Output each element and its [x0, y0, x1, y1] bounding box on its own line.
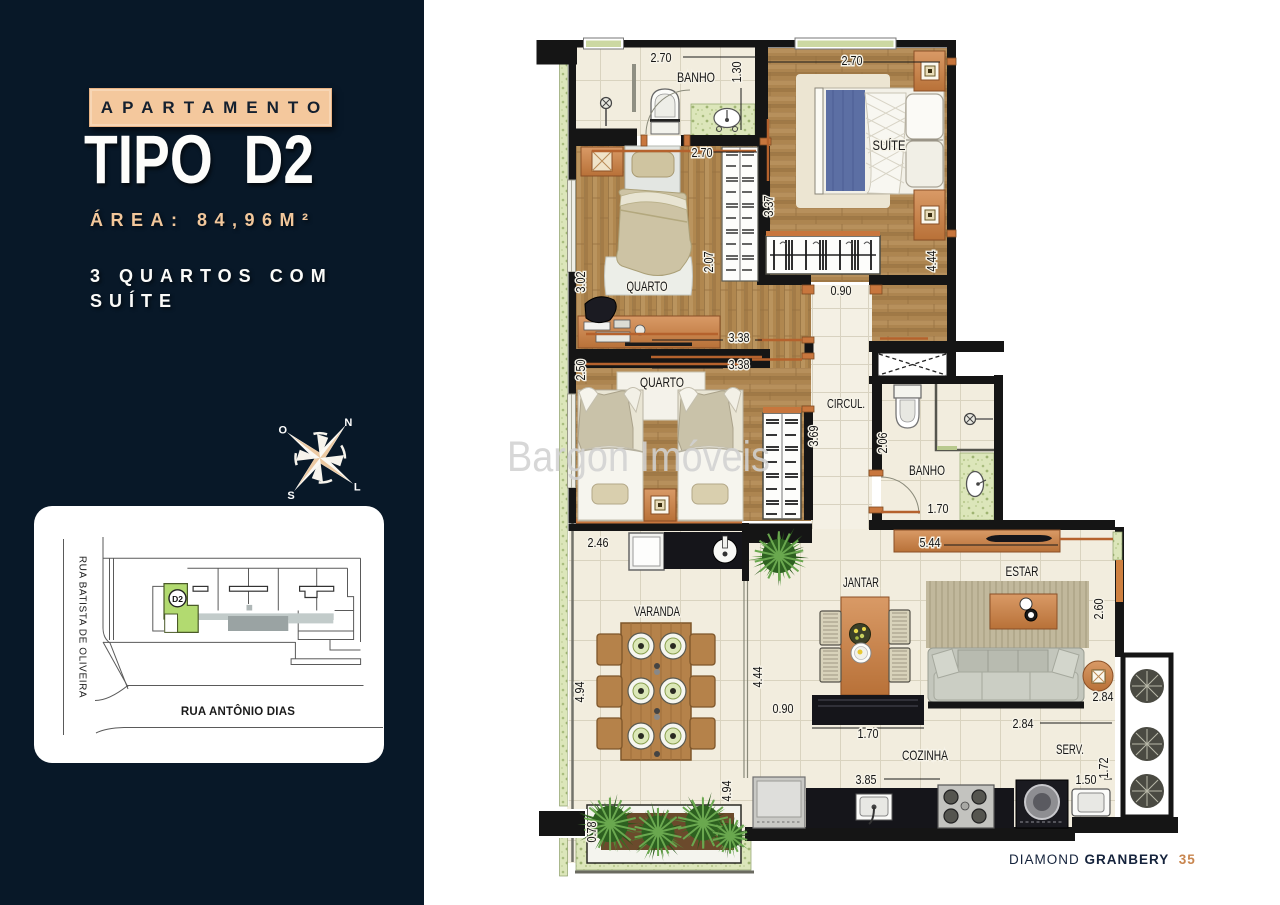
- svg-text:0.90: 0.90: [773, 702, 794, 716]
- svg-text:2.50: 2.50: [574, 359, 588, 380]
- svg-text:ESTAR: ESTAR: [1006, 563, 1039, 579]
- svg-text:VARANDA: VARANDA: [634, 603, 680, 619]
- svg-text:3.38: 3.38: [729, 358, 750, 372]
- svg-text:3.02: 3.02: [574, 271, 588, 292]
- svg-text:COZINHA: COZINHA: [902, 747, 948, 763]
- svg-text:CIRCUL.: CIRCUL.: [827, 396, 865, 411]
- svg-text:0.90: 0.90: [831, 284, 852, 298]
- svg-text:0.78: 0.78: [585, 821, 599, 842]
- svg-text:3.85: 3.85: [856, 773, 877, 787]
- svg-text:SUÍTE: SUÍTE: [873, 137, 906, 153]
- svg-text:2.84: 2.84: [1093, 690, 1114, 704]
- svg-text:2.84: 2.84: [1013, 717, 1034, 731]
- svg-text:2.06: 2.06: [876, 432, 890, 453]
- svg-text:BANHO: BANHO: [677, 69, 715, 85]
- svg-text:4.44: 4.44: [925, 250, 939, 271]
- svg-text:4.94: 4.94: [720, 780, 734, 801]
- svg-text:JANTAR: JANTAR: [843, 574, 879, 590]
- svg-text:4.44: 4.44: [751, 666, 765, 687]
- svg-text:3.69: 3.69: [807, 425, 821, 446]
- svg-text:3.37: 3.37: [762, 195, 776, 216]
- svg-text:SERV.: SERV.: [1056, 741, 1084, 757]
- svg-text:1.50: 1.50: [1076, 773, 1097, 787]
- svg-text:2.46: 2.46: [588, 536, 609, 550]
- svg-text:5.44: 5.44: [920, 536, 941, 550]
- svg-text:3.38: 3.38: [729, 331, 750, 345]
- svg-text:1.72: 1.72: [1097, 757, 1111, 778]
- svg-text:1.30: 1.30: [730, 61, 744, 82]
- svg-text:2.70: 2.70: [651, 51, 672, 65]
- svg-text:2.60: 2.60: [1092, 598, 1106, 619]
- svg-text:QUARTO: QUARTO: [640, 374, 684, 390]
- svg-text:2.07: 2.07: [702, 251, 716, 272]
- svg-text:BANHO: BANHO: [909, 462, 945, 478]
- svg-text:2.70: 2.70: [842, 54, 863, 68]
- svg-text:1.70: 1.70: [928, 502, 949, 516]
- svg-text:1.70: 1.70: [858, 727, 879, 741]
- svg-text:2.70: 2.70: [692, 146, 713, 160]
- svg-text:QUARTO: QUARTO: [627, 278, 668, 294]
- svg-text:4.94: 4.94: [573, 681, 587, 702]
